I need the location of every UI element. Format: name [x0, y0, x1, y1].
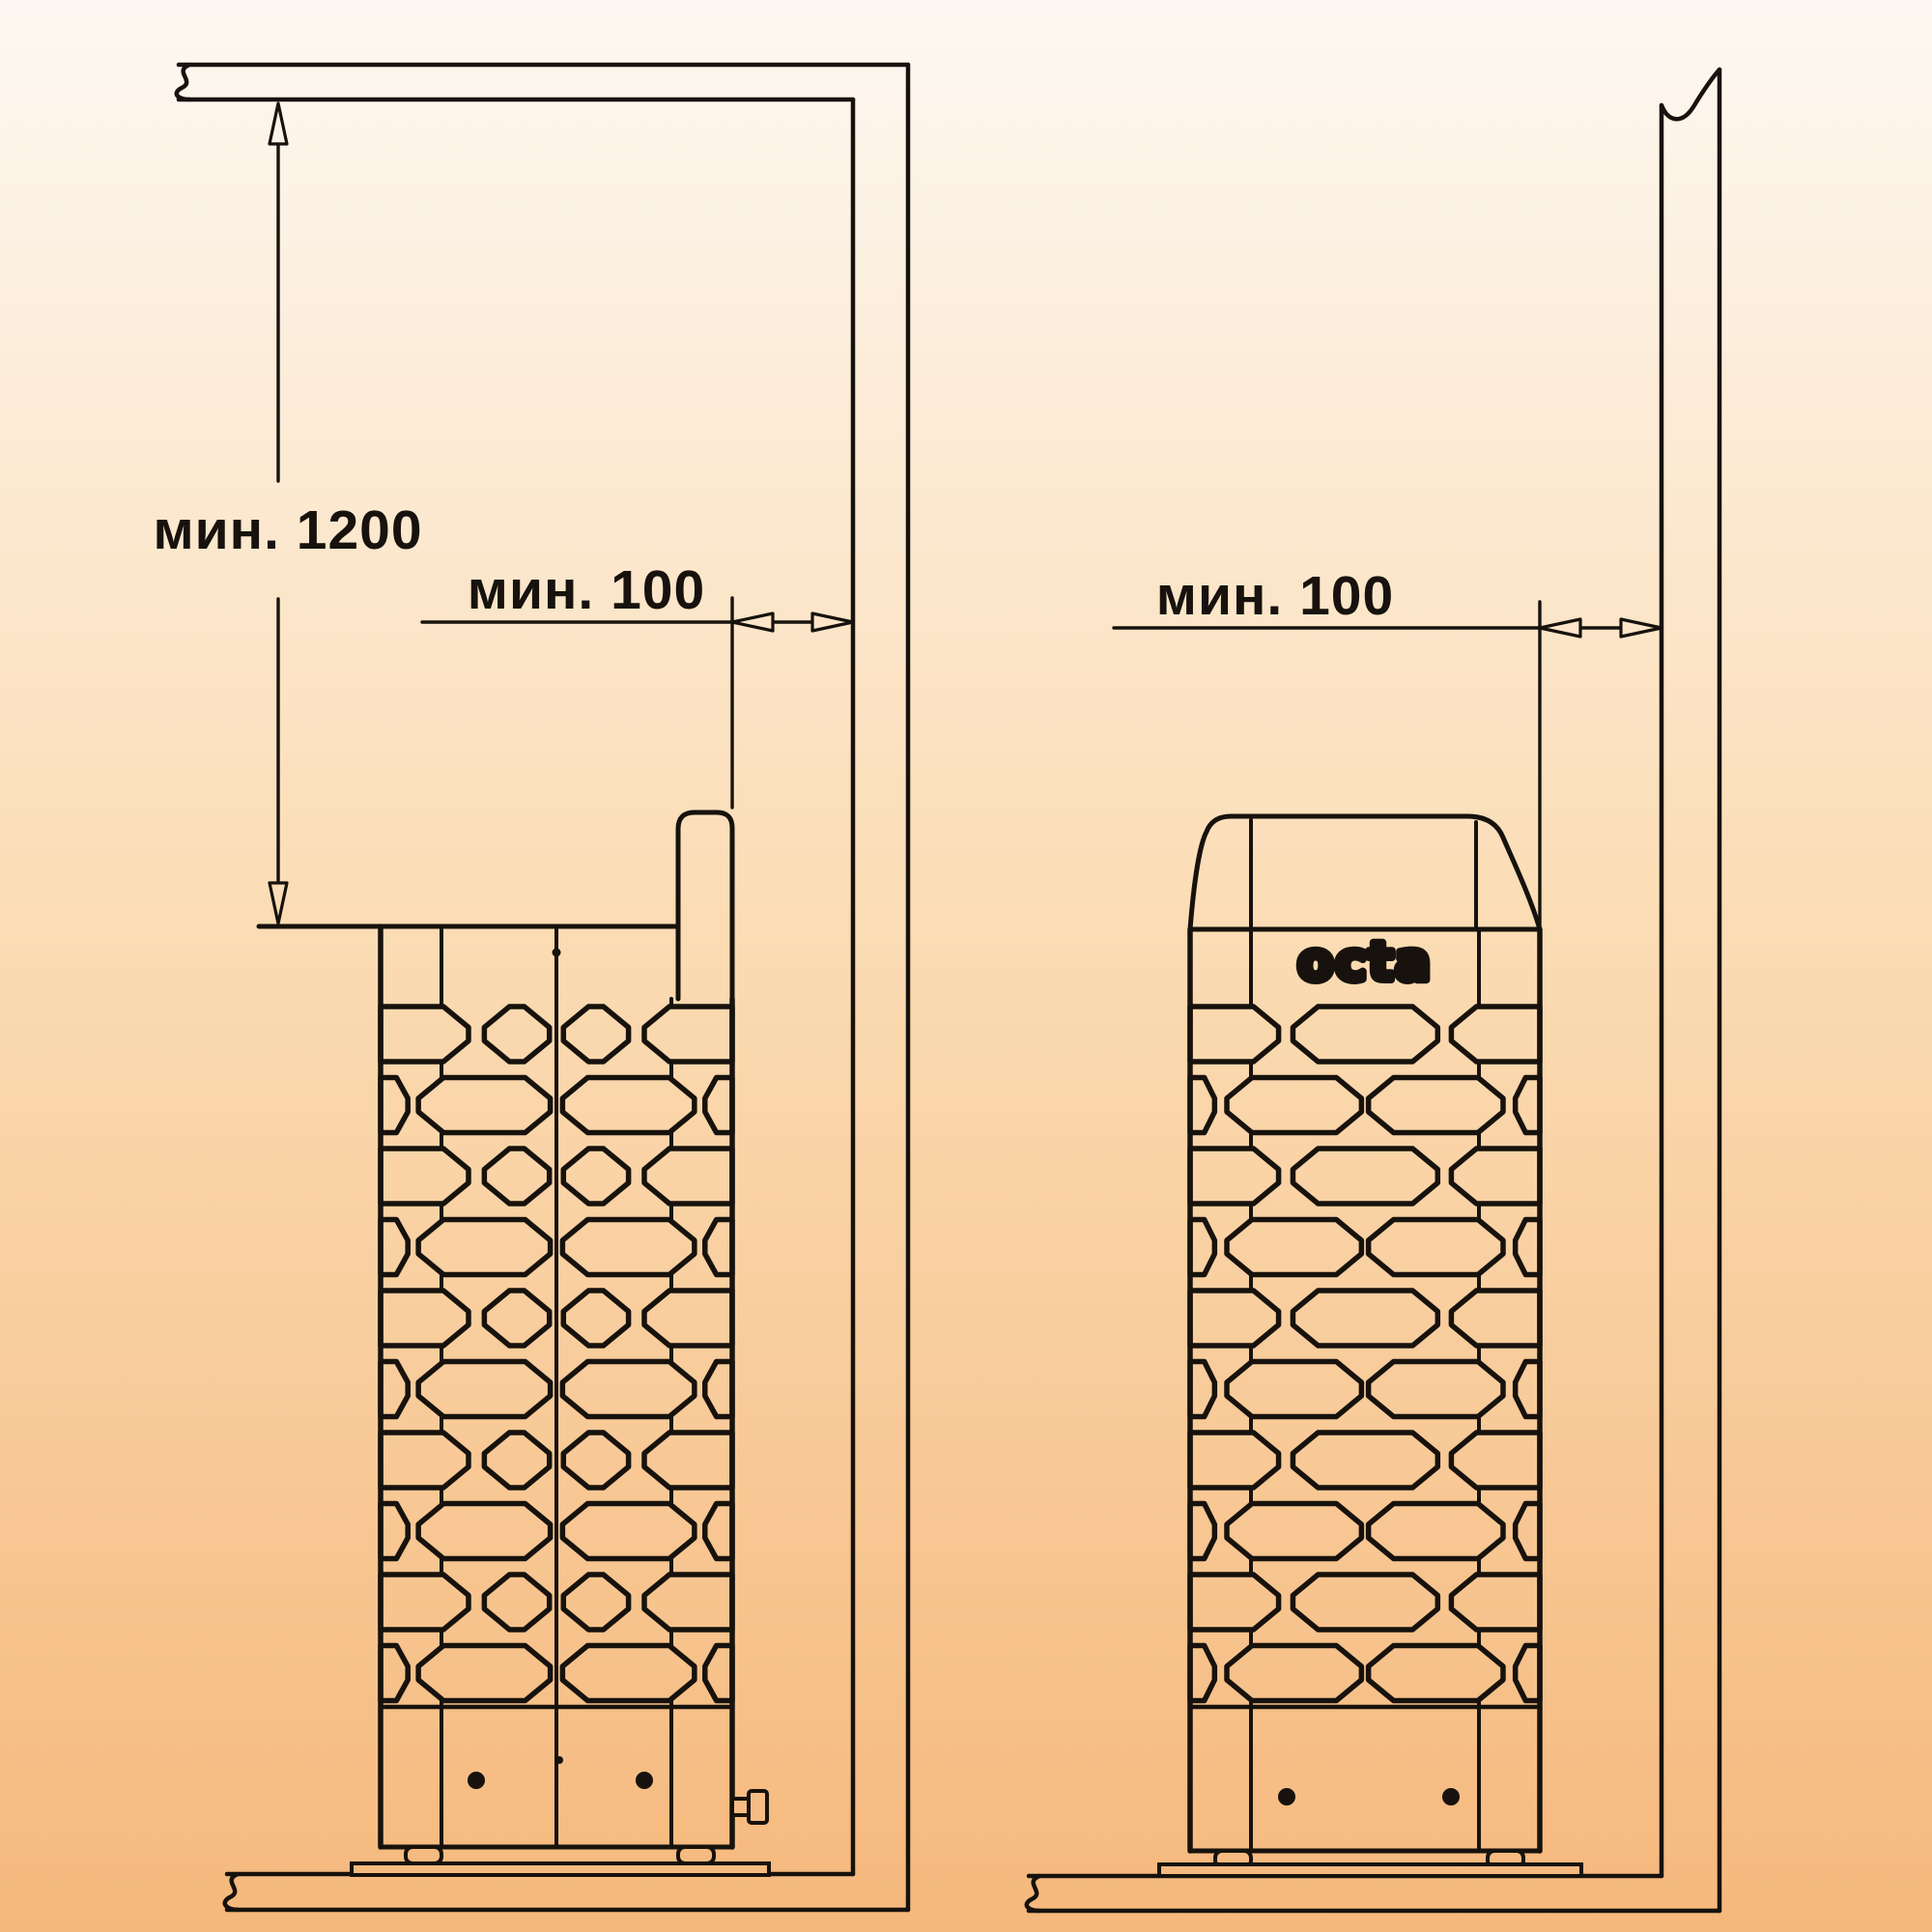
background — [0, 0, 1932, 1932]
min-height-label: мин. 1200 — [153, 499, 422, 561]
installation-clearance-diagram: мин. 1200 мин. 100 мин. 100 octa — [0, 0, 1932, 1932]
installation-diagram-page: мин. 1200 мин. 100 мин. 100 octa — [0, 0, 1932, 1932]
octa-logo: octa — [1297, 931, 1432, 992]
min-gap-right-label: мин. 100 — [1156, 565, 1394, 627]
min-gap-left-label: мин. 100 — [468, 559, 705, 621]
